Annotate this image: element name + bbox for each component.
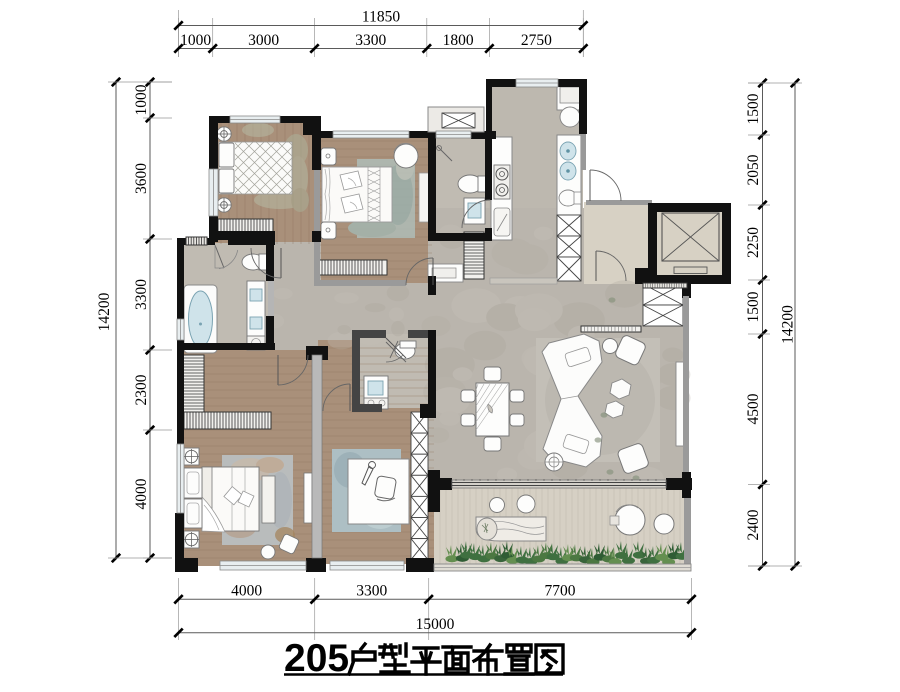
svg-text:1000: 1000 bbox=[133, 84, 150, 115]
svg-text:3300: 3300 bbox=[355, 32, 386, 49]
svg-text:4000: 4000 bbox=[231, 583, 262, 600]
svg-text:11850: 11850 bbox=[362, 9, 400, 26]
svg-text:2250: 2250 bbox=[745, 227, 762, 258]
svg-text:3300: 3300 bbox=[356, 583, 387, 600]
svg-text:1000: 1000 bbox=[180, 32, 211, 49]
svg-text:3300: 3300 bbox=[133, 279, 150, 310]
svg-text:2750: 2750 bbox=[521, 32, 552, 49]
svg-text:3600: 3600 bbox=[133, 163, 150, 194]
svg-text:1500: 1500 bbox=[745, 93, 762, 124]
svg-text:2050: 2050 bbox=[745, 154, 762, 185]
svg-text:4000: 4000 bbox=[133, 478, 150, 509]
svg-text:15000: 15000 bbox=[416, 616, 455, 633]
svg-text:2400: 2400 bbox=[745, 509, 762, 540]
svg-text:1500: 1500 bbox=[745, 291, 762, 322]
svg-text:7700: 7700 bbox=[545, 583, 576, 600]
svg-text:14200: 14200 bbox=[96, 292, 113, 331]
svg-text:4500: 4500 bbox=[745, 393, 762, 424]
svg-text:14200: 14200 bbox=[780, 305, 797, 344]
svg-text:3000: 3000 bbox=[248, 32, 279, 49]
svg-text:1800: 1800 bbox=[443, 32, 474, 49]
svg-text:2300: 2300 bbox=[133, 374, 150, 405]
